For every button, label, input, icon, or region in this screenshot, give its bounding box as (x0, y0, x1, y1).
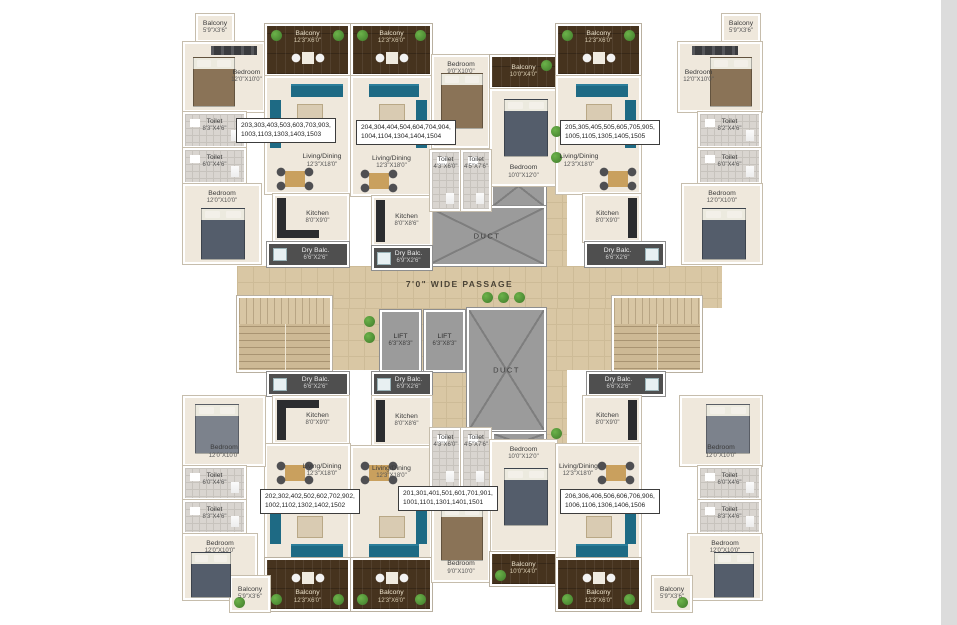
toilet-fixtures-icon (703, 471, 756, 495)
washer-icon (645, 378, 659, 391)
lift-label: LIFT6'3"X8'3" (383, 333, 418, 349)
cafe-table-icon (291, 568, 325, 588)
sofa-icon (291, 544, 343, 557)
sofa-icon (576, 84, 628, 97)
scrollbar[interactable] (941, 0, 957, 625)
room-label: Balcony5'9"X3'6" (725, 20, 757, 36)
bedroom-mid-right: Bedroom12'0"X10'0" (682, 184, 762, 264)
plant-icon (333, 594, 344, 605)
kitchen-unit-206: Kitchen8'0"X9'0" (583, 396, 641, 444)
dining-table-icon (598, 166, 638, 192)
sofa-icon (369, 544, 419, 557)
cafe-table-icon (375, 568, 409, 588)
duct-bottom: DUCT (467, 308, 546, 432)
staircase-right (612, 296, 702, 372)
duct-label: DUCT (469, 366, 544, 375)
stair-landing (239, 298, 330, 324)
balcony-bottom-left: Balcony5'9"X3'6" (230, 576, 270, 612)
bed-icon (201, 208, 245, 260)
kitchen-unit-204: Kitchen8'0"X8'6" (372, 196, 432, 246)
bedroom-bottom-right: Bedroom12'0"X10'0" (688, 534, 762, 600)
plant-icon (415, 594, 426, 605)
duct-label: DUCT (430, 232, 544, 241)
plant-icon (541, 60, 552, 71)
plant-icon (364, 332, 375, 343)
plant-icon (562, 594, 573, 605)
room-label: Living/Dining12'3"X18'0" (559, 463, 597, 479)
toilet-bottom-left-1: Toilet6'0"X4'6" (183, 466, 246, 500)
dry-balcony-unit-205: Dry Balc.6'6"X2'6" (585, 242, 665, 267)
toilet-fixtures-icon (435, 155, 456, 206)
room-label: Dry Balc.6'6"X2'6" (285, 247, 346, 263)
kitchen-unit-205: Kitchen8'0"X9'0" (583, 194, 641, 242)
bed-icon (706, 404, 750, 454)
passage-label: 7'0" WIDE PASSAGE (237, 279, 682, 289)
duct-top: DUCT (428, 206, 546, 266)
toilet-fixtures-icon (466, 155, 486, 206)
bedroom-top-left: Bedroom12'0"X10'0" (183, 42, 265, 112)
dining-table-icon (359, 168, 399, 194)
bed-icon (441, 505, 483, 561)
room-label: Dry Balc.6'9"X2'6" (388, 376, 429, 392)
washer-icon (645, 248, 659, 261)
dining-table-icon (275, 166, 315, 192)
unit-numbers-202: 202,302,402,502,602,702,902,1002,1102,13… (260, 489, 360, 514)
balcony-top-center: Balcony10'0"X4'0" (490, 55, 557, 89)
unit-numbers-205: 205,305,405,505,605,705,905,1005,1105,13… (560, 120, 660, 145)
room-label: Dry Balc.6'9"X2'6" (388, 250, 429, 266)
room-label: Living/Dining12'3"X18'0" (559, 153, 599, 169)
dining-table-icon (275, 460, 315, 486)
toilet-fixtures-icon (188, 153, 241, 179)
toilet-fixtures-icon (435, 433, 456, 484)
sofa-icon (369, 84, 419, 97)
toilet-fixtures-icon (466, 433, 486, 484)
balcony-unit-203: Balcony12'3"X6'0" (265, 24, 350, 76)
bedroom-top-right: Bedroom12'0"X10'0" (678, 42, 762, 112)
plant-icon (551, 428, 562, 439)
sofa-icon (576, 544, 628, 557)
plant-icon (514, 292, 525, 303)
unit-numbers-203: 203,303,403,503,603,703,903,1003,1103,13… (236, 118, 336, 143)
balcony-bottom-center: Balcony10'0"X4'0" (490, 552, 557, 586)
bedroom-mid-left: Bedroom12'0"X10'0" (183, 184, 261, 264)
unit-numbers-204: 204,304,404,504,604,704,904,1004,1104,13… (356, 120, 456, 145)
plant-icon (498, 292, 509, 303)
bed-icon (504, 99, 548, 157)
kitchen-counter-icon (628, 198, 637, 238)
plant-icon (482, 292, 493, 303)
balcony-unit-202: Balcony12'3"X6'0" (265, 558, 350, 611)
dining-table-icon (596, 460, 636, 486)
dry-balcony-unit-204: Dry Balc.6'9"X2'6" (372, 246, 432, 270)
washer-icon (273, 378, 287, 391)
plant-icon (333, 30, 344, 41)
toilet-top-right-2: Toilet6'0"X4'6" (698, 148, 761, 184)
cafe-table-icon (291, 48, 325, 68)
coffee-table-icon (379, 516, 405, 538)
balcony-bottom-right: Balcony5'9"X3'6" (652, 576, 692, 612)
washer-icon (377, 252, 391, 265)
plant-icon (357, 594, 368, 605)
plant-icon (415, 30, 426, 41)
kitchen-unit-203: Kitchen8'0"X9'0" (273, 194, 349, 242)
bed-icon (193, 57, 235, 107)
cafe-table-icon (375, 48, 409, 68)
room-label: Kitchen8'0"X9'0" (289, 210, 346, 226)
bedroom-bottom-center-right: Bedroom10'0"X12'0" (490, 440, 557, 552)
toilet-top-right-1: Toilet8'2"X4'6" (698, 112, 761, 148)
toilet-bottom-center-1: Toilet4'3"X6'0" (430, 428, 461, 489)
staircase-left (237, 296, 332, 372)
bed-icon (504, 468, 548, 526)
toilet-fixtures-icon (188, 505, 241, 529)
bed-icon (710, 57, 752, 107)
cafe-table-icon (582, 568, 616, 588)
bed-icon (191, 552, 231, 598)
room-label: Dry Balc.6'6"X2'6" (590, 376, 647, 392)
plant-icon (624, 30, 635, 41)
balcony-top-left: Balcony5'9"X3'6" (196, 14, 234, 42)
lift-right: LIFT6'3"X8'3" (424, 310, 465, 372)
room-label: Bedroom9'0"X10'0" (435, 560, 487, 576)
plant-icon (234, 597, 245, 608)
balcony-unit-206: Balcony12'3"X6'0" (556, 558, 641, 611)
balcony-unit-205: Balcony12'3"X6'0" (556, 24, 641, 76)
toilet-fixtures-icon (188, 471, 241, 495)
kitchen-counter-icon (376, 200, 385, 242)
toilet-top-left-2: Toilet6'0"X4'6" (183, 148, 246, 184)
room-label: Kitchen8'0"X9'0" (289, 412, 346, 428)
bedroom-lower-right: Bedroom12'0"X10'0" (680, 396, 762, 466)
bed-icon (195, 404, 239, 454)
toilet-fixtures-icon (703, 153, 756, 179)
lift-label: LIFT6'3"X8'3" (427, 333, 462, 349)
room-label: Bedroom10'0"X12'0" (493, 446, 554, 462)
room-label: Balcony5'9"X3'6" (199, 20, 231, 36)
room-label: Bedroom10'0"X12'0" (493, 164, 554, 180)
kitchen-counter-icon (277, 400, 319, 408)
plant-icon (562, 30, 573, 41)
plant-icon (271, 30, 282, 41)
coffee-table-icon (586, 516, 612, 538)
bedroom-top-center-right: Bedroom10'0"X12'0" (490, 89, 557, 186)
toilet-bottom-right-1: Toilet6'0"X4'6" (698, 466, 761, 500)
unit-numbers-206: 206,306,406,506,606,706,906,1006,1106,13… (560, 489, 660, 514)
room-label: Bedroom12'0"X10'0" (186, 190, 258, 206)
room-label: Dry Balc.6'6"X2'6" (588, 247, 647, 263)
dry-balcony-unit-202: Dry Balc.6'6"X2'6" (267, 372, 349, 396)
wardrobe-icon (211, 46, 257, 55)
room-label: Kitchen8'0"X8'6" (384, 413, 429, 429)
bedroom-lower-left: Bedroom12'0"X10'0" (183, 396, 265, 466)
toilet-fixtures-icon (703, 117, 756, 143)
room-label: Bedroom12'0"X10'0" (231, 69, 262, 85)
balcony-top-right: Balcony5'9"X3'6" (722, 14, 760, 42)
plant-icon (364, 316, 375, 327)
plant-icon (551, 152, 562, 163)
plant-icon (624, 594, 635, 605)
balcony-unit-201: Balcony12'3"X6'0" (351, 558, 432, 611)
balcony-unit-204: Balcony12'3"X6'0" (351, 24, 432, 76)
room-label: Kitchen8'0"X9'0" (586, 210, 629, 226)
plant-icon (677, 597, 688, 608)
washer-icon (377, 378, 391, 391)
toilet-fixtures-icon (188, 117, 241, 143)
toilet-bottom-left-2: Toilet8'3"X4'6" (183, 500, 246, 534)
washer-icon (273, 248, 287, 261)
bed-icon (714, 552, 754, 598)
cafe-table-icon (582, 48, 616, 68)
wardrobe-icon (692, 46, 738, 55)
kitchen-unit-202: Kitchen8'0"X9'0" (273, 396, 349, 444)
kitchen-counter-icon (376, 400, 385, 442)
coffee-table-icon (297, 516, 323, 538)
plant-icon (271, 594, 282, 605)
sofa-icon (291, 84, 343, 97)
room-label: Kitchen8'0"X8'6" (384, 213, 429, 229)
room-label: Bedroom12'0"X10'0" (685, 190, 759, 206)
bed-icon (702, 208, 746, 260)
room-label: Dry Balc.6'6"X2'6" (285, 376, 346, 392)
toilet-bottom-right-2: Toilet8'3"X4'6" (698, 500, 761, 534)
dry-balcony-unit-203: Dry Balc.6'6"X2'6" (267, 242, 349, 267)
kitchen-counter-icon (277, 230, 319, 238)
stair-landing (614, 298, 700, 324)
dry-balcony-unit-201: Dry Balc.6'9"X2'6" (372, 372, 432, 396)
dry-balcony-unit-206: Dry Balc.6'6"X2'6" (587, 372, 665, 396)
plant-icon (495, 570, 506, 581)
toilet-top-center-1: Toilet4'3"X6'0" (430, 150, 461, 211)
floor-plan-canvas: 7'0" WIDE PASSAGE LIFT6'3"X8'3" LIFT6'3"… (0, 0, 957, 625)
unit-numbers-201: 201,301,401,501,601,701,901,1001,1101,13… (398, 486, 498, 511)
toilet-bottom-center-2: Toilet4'5"X7'6" (461, 428, 491, 489)
kitchen-unit-201: Kitchen8'0"X8'6" (372, 396, 432, 446)
dining-table-icon (359, 460, 399, 486)
lift-left: LIFT6'3"X8'3" (380, 310, 421, 372)
room-label: Kitchen8'0"X9'0" (586, 412, 629, 428)
plant-icon (357, 30, 368, 41)
toilet-fixtures-icon (703, 505, 756, 529)
kitchen-counter-icon (628, 400, 637, 440)
toilet-top-center-2: Toilet4'5"X7'6" (461, 150, 491, 211)
